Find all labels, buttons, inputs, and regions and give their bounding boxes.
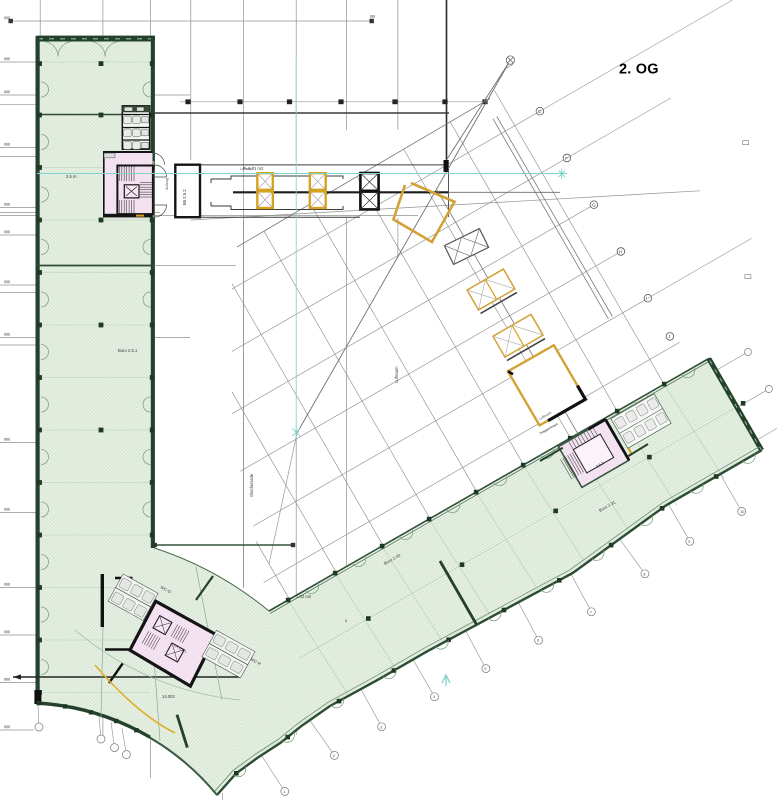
svg-text:P=5.71 m2: P=5.71 m2 — [243, 166, 264, 171]
svg-text:3: 3 — [380, 725, 382, 729]
svg-text:Glasfassade: Glasfassade — [249, 473, 254, 497]
svg-text:F: F — [565, 156, 568, 161]
svg-text:B5 2.5.2: B5 2.5.2 — [182, 189, 187, 205]
svg-text:2: 2 — [333, 754, 335, 758]
svg-text:2. OG: 2. OG — [619, 62, 659, 78]
svg-text:6: 6 — [537, 639, 539, 643]
svg-text:5: 5 — [484, 667, 486, 671]
svg-text:10: 10 — [740, 510, 744, 514]
svg-text:1: 1 — [283, 790, 285, 794]
svg-text:Luftraum: Luftraum — [394, 366, 399, 383]
svg-text:8: 8 — [643, 572, 645, 576]
svg-text:4: 4 — [433, 695, 435, 699]
svg-text:9: 9 — [688, 540, 690, 544]
svg-text:Buro 2.5.1: Buro 2.5.1 — [118, 348, 138, 353]
svg-text:E: E — [538, 109, 541, 114]
svg-text:3.5 m: 3.5 m — [66, 174, 77, 179]
svg-text:1.02 m2: 1.02 m2 — [296, 594, 312, 599]
svg-text:J: J — [668, 334, 670, 339]
svg-text:H: H — [619, 249, 622, 254]
svg-text:I: I — [646, 296, 647, 301]
svg-text:Aufzug: Aufzug — [165, 178, 169, 190]
svg-text:7: 7 — [590, 610, 592, 614]
svg-text:14.002: 14.002 — [162, 694, 175, 699]
svg-text:G: G — [592, 203, 596, 208]
